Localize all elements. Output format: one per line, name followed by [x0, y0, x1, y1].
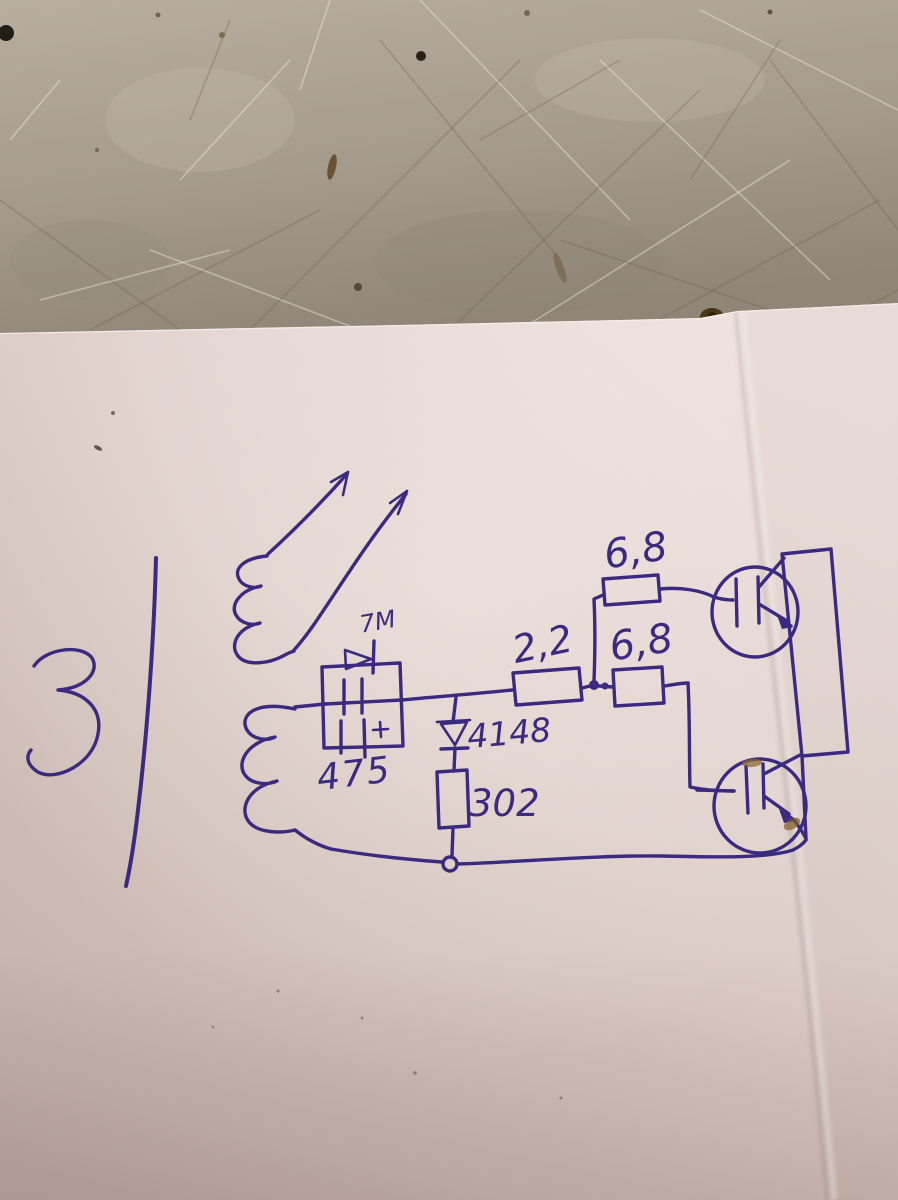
photo-hand-drawn-schematic: 7M 475 4148 302 2,2 6,8 6,8	[0, 0, 898, 1200]
label-upper-gate-resistor: 6,8	[601, 523, 671, 578]
label-lower-gate-resistor: 6,8	[606, 615, 676, 670]
label-clamp-diode: 4148	[466, 710, 553, 756]
workbench-surface	[0, 0, 898, 345]
label-lower-resistor: 302	[469, 782, 540, 825]
